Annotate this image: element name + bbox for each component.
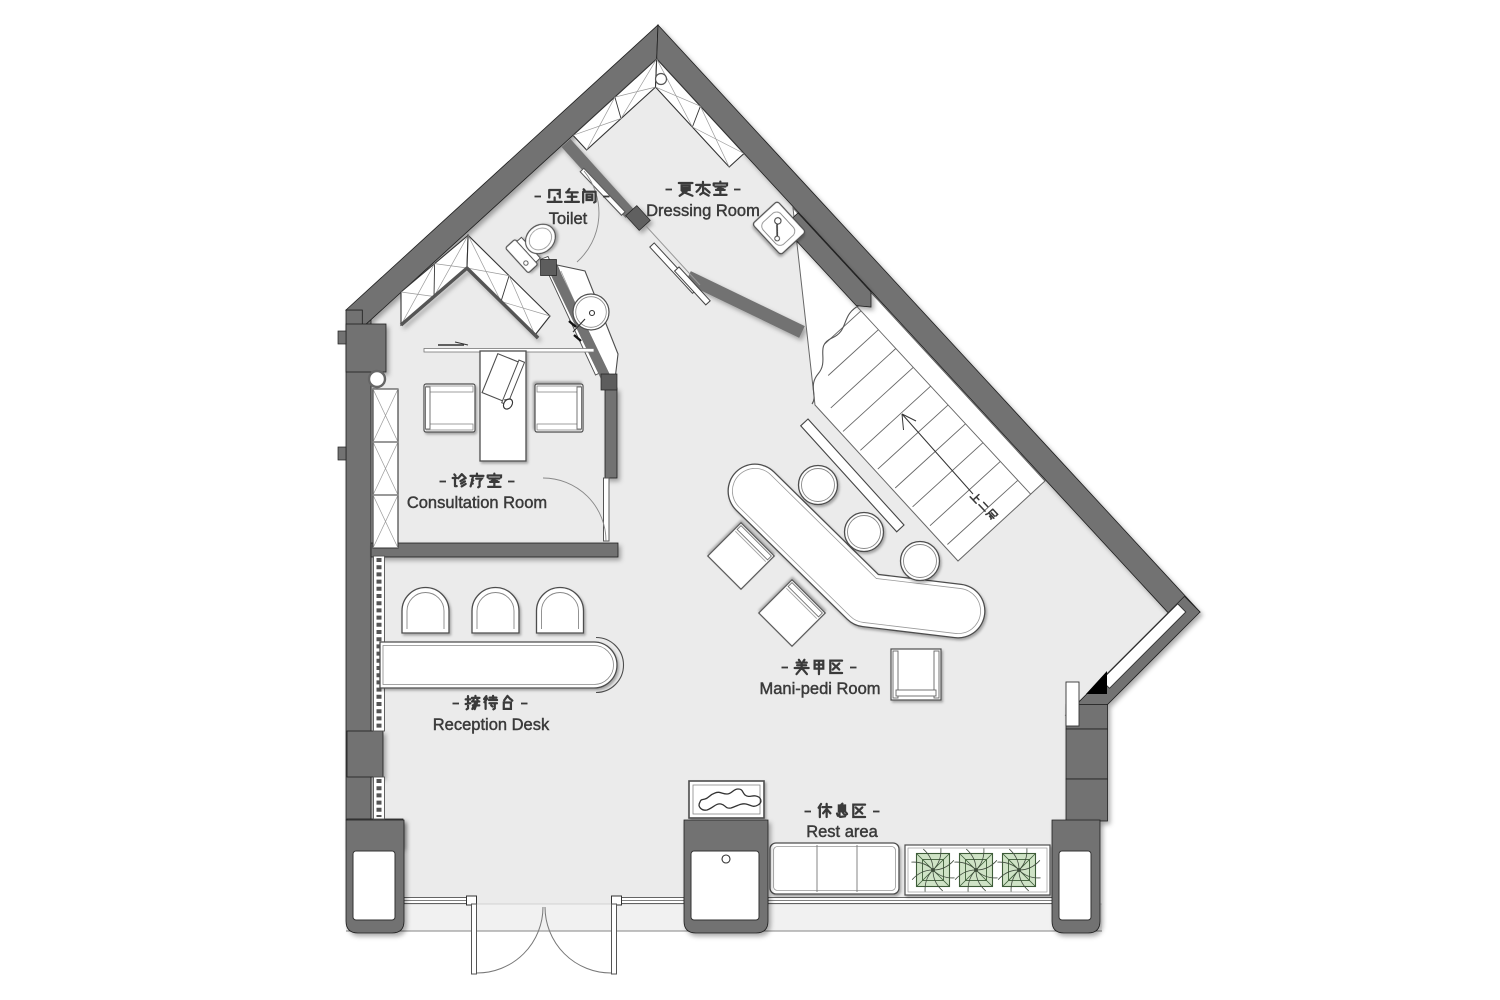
svg-text:Consultation Room: Consultation Room [407,494,547,512]
svg-text:Rest area: Rest area [806,823,878,841]
svg-text:Reception Desk: Reception Desk [433,716,550,734]
svg-text:Dressing Room: Dressing Room [646,202,760,220]
svg-text:Mani-pedi Room: Mani-pedi Room [759,680,880,698]
svg-text:Toilet: Toilet [549,210,588,228]
